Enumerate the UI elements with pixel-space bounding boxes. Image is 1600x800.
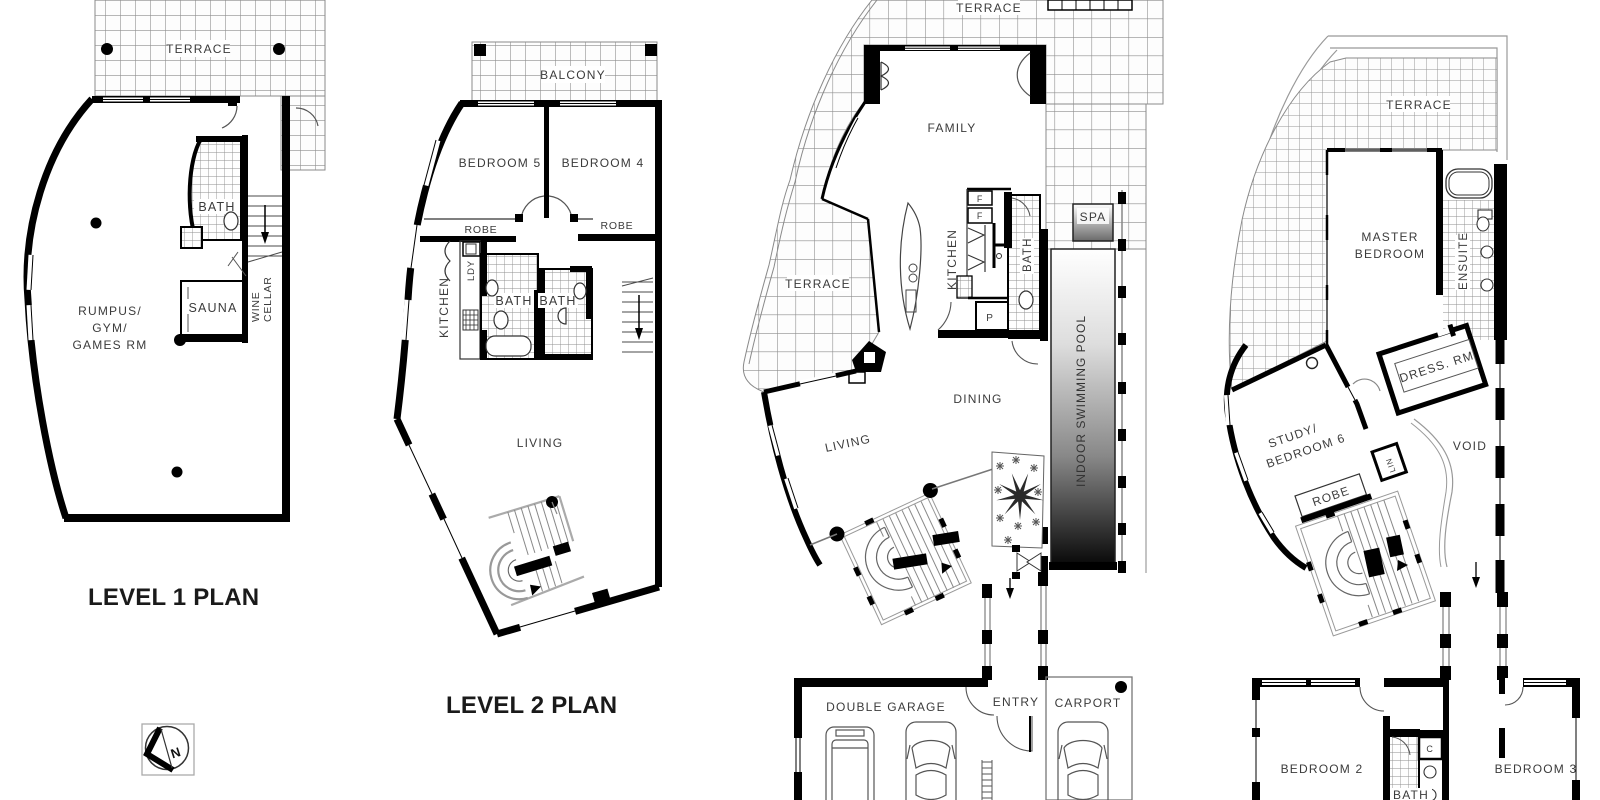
svg-text:FAMILY: FAMILY [928,121,977,135]
svg-text:DOUBLE GARAGE: DOUBLE GARAGE [826,700,946,714]
svg-text:GYM/: GYM/ [92,321,127,335]
svg-text:LEVEL 1 PLAN: LEVEL 1 PLAN [88,584,259,611]
svg-text:BEDROOM: BEDROOM [1355,247,1425,261]
svg-text:P: P [986,313,993,324]
svg-text:CELLAR: CELLAR [262,276,274,322]
svg-text:LIVING: LIVING [517,436,564,450]
svg-text:BALCONY: BALCONY [540,68,606,82]
svg-text:ENSUITE: ENSUITE [1458,232,1470,290]
svg-text:ENTRY: ENTRY [993,695,1039,709]
svg-text:BATH: BATH [495,294,532,308]
svg-text:INDOOR SWIMMING POOL: INDOOR SWIMMING POOL [1074,315,1088,487]
svg-text:SPA: SPA [1080,210,1107,224]
svg-text:WINE: WINE [250,291,262,322]
svg-text:BATH: BATH [1393,788,1429,800]
svg-text:SAUNA: SAUNA [188,301,237,315]
svg-text:VOID: VOID [1453,439,1487,453]
svg-text:KITCHEN: KITCHEN [437,277,451,338]
svg-text:BEDROOM 3: BEDROOM 3 [1495,762,1578,776]
svg-text:BATH: BATH [1022,237,1034,272]
svg-text:ROBE: ROBE [465,224,498,236]
svg-text:BEDROOM 5: BEDROOM 5 [459,156,542,170]
svg-text:TERRACE: TERRACE [166,42,232,56]
svg-text:BEDROOM 2: BEDROOM 2 [1281,762,1364,776]
svg-text:GAMES RM: GAMES RM [73,338,148,352]
svg-text:F: F [977,194,983,204]
svg-text:MASTER: MASTER [1361,230,1418,244]
svg-text:LDY: LDY [466,260,477,281]
svg-text:BATH: BATH [539,294,576,308]
svg-text:C: C [1426,744,1433,754]
svg-text:TERRACE: TERRACE [956,1,1022,15]
svg-text:CARPORT: CARPORT [1055,696,1122,710]
svg-text:BEDROOM 4: BEDROOM 4 [562,156,645,170]
svg-text:ROBE: ROBE [601,220,634,232]
svg-text:TERRACE: TERRACE [785,277,851,291]
svg-text:LEVEL 2 PLAN: LEVEL 2 PLAN [446,692,617,719]
svg-text:DINING: DINING [953,392,1002,406]
svg-text:RUMPUS/: RUMPUS/ [78,304,142,318]
svg-text:TERRACE: TERRACE [1386,98,1452,112]
svg-text:F: F [977,211,983,221]
